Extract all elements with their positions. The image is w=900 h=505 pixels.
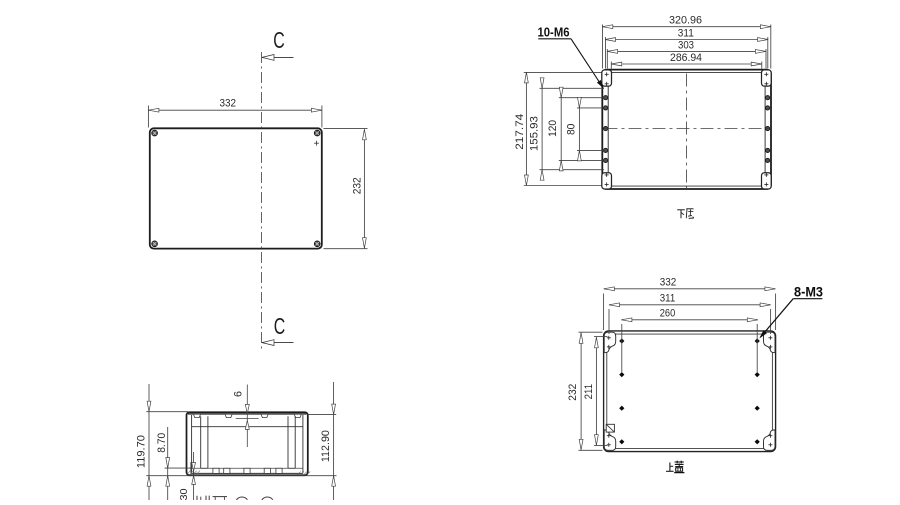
svg-text:332: 332 <box>660 276 677 288</box>
svg-text:120: 120 <box>547 120 559 137</box>
svg-text:217.74: 217.74 <box>514 114 526 150</box>
svg-text:80: 80 <box>566 124 578 136</box>
svg-text:332: 332 <box>220 98 237 110</box>
svg-text:C: C <box>273 27 285 53</box>
svg-text:260: 260 <box>660 307 676 319</box>
svg-text:211: 211 <box>583 384 595 400</box>
svg-text:320.96: 320.96 <box>669 15 702 27</box>
svg-text:232: 232 <box>352 177 364 194</box>
svg-text:303: 303 <box>678 39 694 51</box>
svg-text:6: 6 <box>233 391 245 397</box>
svg-text:30: 30 <box>179 488 190 500</box>
svg-text:155.93: 155.93 <box>529 116 541 151</box>
svg-text:286.94: 286.94 <box>670 52 702 64</box>
svg-text:119.70: 119.70 <box>136 435 148 468</box>
svg-text:112.90: 112.90 <box>320 430 332 462</box>
svg-text:C: C <box>274 313 286 339</box>
svg-text:311: 311 <box>678 27 694 39</box>
svg-text:10-M6: 10-M6 <box>538 26 570 40</box>
svg-text:8-M3: 8-M3 <box>794 284 823 300</box>
svg-text:232: 232 <box>567 384 579 401</box>
svg-text:311: 311 <box>660 292 676 304</box>
svg-text:8.70: 8.70 <box>156 433 168 453</box>
